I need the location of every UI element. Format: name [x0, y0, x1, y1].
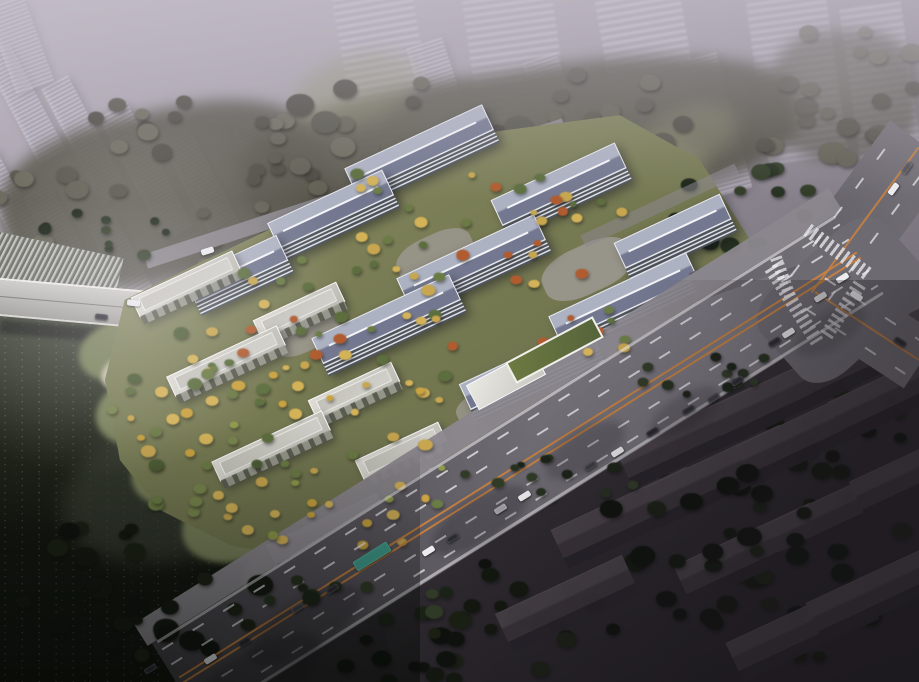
tree — [72, 209, 83, 218]
tree — [189, 496, 202, 507]
tree — [256, 383, 270, 394]
tree — [820, 107, 835, 119]
tree — [828, 543, 849, 560]
tree — [771, 187, 785, 198]
tree — [891, 522, 912, 539]
tree — [360, 635, 373, 645]
tree — [831, 564, 855, 583]
tree — [123, 543, 146, 561]
tree — [825, 450, 840, 462]
tree — [371, 650, 392, 667]
tree — [540, 455, 550, 463]
tree — [638, 378, 649, 387]
tree — [125, 388, 135, 396]
tree — [333, 79, 357, 98]
tree — [435, 397, 443, 403]
tree — [449, 611, 472, 629]
tree — [237, 348, 249, 357]
tree — [47, 539, 69, 556]
tree — [268, 152, 282, 163]
tree — [185, 449, 195, 457]
tree — [270, 163, 286, 175]
tree — [124, 524, 137, 535]
tree — [432, 315, 441, 322]
tree — [104, 240, 113, 247]
tree — [536, 488, 546, 496]
tree — [894, 432, 907, 442]
tree — [870, 50, 887, 64]
tree — [110, 184, 127, 198]
tree — [600, 500, 623, 518]
aerial-rendering-scene — [0, 0, 919, 682]
tree — [17, 596, 32, 608]
tree — [259, 300, 270, 309]
tree — [109, 98, 127, 112]
tree — [128, 373, 141, 384]
tree — [802, 82, 820, 96]
tree — [607, 318, 615, 324]
tree — [339, 350, 351, 360]
tree — [246, 326, 257, 335]
tree — [289, 408, 303, 419]
tree — [270, 132, 286, 145]
tree — [837, 151, 857, 167]
tree — [131, 615, 143, 625]
tree — [426, 589, 439, 599]
tree — [369, 260, 378, 267]
tree — [292, 381, 304, 391]
tree — [104, 636, 120, 649]
tree — [405, 380, 413, 386]
tree — [647, 501, 667, 517]
tree — [461, 470, 471, 478]
tree — [570, 201, 577, 207]
tree — [600, 489, 611, 498]
tree — [413, 77, 429, 90]
tree — [383, 236, 393, 244]
tree — [255, 398, 265, 406]
tree — [161, 600, 179, 615]
tree — [88, 111, 104, 124]
tree — [778, 76, 799, 93]
tree — [187, 355, 198, 364]
tree — [150, 428, 162, 438]
tree — [149, 459, 164, 471]
car-on-road — [126, 299, 140, 306]
tree — [167, 111, 181, 123]
tree — [127, 597, 145, 611]
tree — [350, 168, 364, 179]
tree — [360, 582, 373, 593]
tree — [872, 94, 891, 109]
tree — [302, 591, 319, 605]
tree — [683, 391, 692, 398]
tree — [113, 617, 133, 633]
tree — [300, 361, 309, 369]
car-on-road — [94, 313, 108, 320]
tree — [251, 459, 262, 468]
tree — [310, 468, 318, 474]
tree — [224, 359, 234, 367]
tree — [736, 464, 758, 482]
tree — [282, 365, 289, 371]
tree — [433, 272, 445, 281]
tree — [726, 362, 737, 371]
tree — [422, 285, 435, 296]
tree — [179, 630, 205, 651]
tree — [150, 217, 160, 225]
tree — [278, 401, 287, 408]
tree — [352, 266, 362, 274]
tree — [428, 628, 441, 638]
tree — [356, 232, 369, 242]
tree — [101, 226, 111, 234]
tree — [206, 395, 219, 405]
tree — [194, 483, 207, 493]
tree — [408, 661, 422, 672]
tree — [367, 244, 381, 255]
tree — [379, 613, 394, 625]
tree — [302, 282, 313, 291]
tree — [155, 387, 169, 398]
tree — [751, 485, 773, 503]
tree — [531, 662, 549, 677]
tree — [456, 249, 469, 260]
tree — [535, 173, 546, 182]
tree — [264, 596, 276, 605]
tree — [410, 272, 419, 279]
tree — [463, 599, 480, 613]
tree — [562, 470, 573, 478]
tree — [138, 124, 159, 141]
tree — [230, 422, 239, 429]
tree — [326, 395, 333, 401]
tree — [206, 327, 218, 337]
tree — [181, 408, 193, 418]
tree — [575, 269, 588, 280]
tree — [197, 208, 210, 218]
tree — [225, 503, 238, 513]
tree — [439, 587, 452, 598]
tree — [335, 311, 349, 322]
tree — [350, 409, 358, 416]
tree — [86, 579, 100, 590]
tree — [262, 433, 275, 443]
tree — [490, 183, 501, 192]
tree — [514, 184, 527, 194]
tree — [366, 176, 379, 186]
tree — [50, 618, 71, 635]
tree — [201, 369, 214, 380]
tree — [58, 523, 79, 540]
tree — [107, 406, 117, 414]
tree — [526, 473, 537, 482]
tree — [270, 510, 280, 518]
tree — [38, 224, 51, 235]
tree — [438, 370, 452, 381]
tree — [135, 109, 149, 120]
tree — [669, 554, 686, 567]
tree — [485, 624, 498, 635]
tree — [636, 98, 654, 112]
tree — [798, 113, 815, 127]
tree — [604, 306, 614, 314]
tree — [295, 327, 306, 336]
tree — [858, 27, 872, 38]
tree — [362, 382, 370, 388]
tree — [426, 605, 444, 619]
tree — [174, 327, 189, 339]
tree — [199, 433, 213, 444]
tree — [376, 355, 389, 365]
tree — [269, 372, 277, 379]
tree — [597, 199, 606, 206]
tree — [255, 116, 270, 128]
tree — [482, 568, 499, 582]
tree — [905, 82, 919, 95]
tree — [162, 229, 170, 236]
tree — [387, 510, 400, 520]
tree — [127, 415, 134, 421]
tree — [734, 186, 746, 195]
tree — [166, 414, 179, 425]
tree — [447, 342, 458, 351]
tree — [717, 596, 738, 613]
tree — [759, 353, 770, 362]
tree — [796, 507, 811, 519]
tree — [756, 138, 774, 152]
tree — [799, 25, 819, 41]
tree — [405, 205, 413, 212]
tree — [331, 137, 356, 157]
tree — [510, 275, 522, 284]
tree — [534, 240, 541, 246]
tree — [356, 184, 366, 192]
tree — [308, 180, 327, 195]
tree — [800, 184, 816, 197]
tree — [716, 477, 739, 495]
tree — [680, 493, 702, 511]
tree — [608, 462, 622, 473]
tree — [504, 251, 513, 258]
tree — [289, 316, 297, 323]
tree — [446, 632, 465, 647]
tree — [202, 462, 212, 470]
tree — [572, 213, 583, 222]
tree — [786, 547, 809, 565]
tree — [425, 667, 444, 682]
tree — [639, 74, 660, 91]
tree — [707, 616, 724, 630]
tree — [836, 118, 859, 136]
tree — [137, 249, 151, 260]
tree — [832, 465, 851, 480]
tree — [446, 672, 462, 682]
tree — [312, 111, 339, 133]
tree — [196, 573, 212, 586]
tree — [151, 144, 172, 160]
tree — [152, 496, 162, 504]
tree — [380, 674, 397, 682]
tree — [176, 95, 192, 108]
tree — [290, 158, 311, 175]
tree — [787, 534, 804, 548]
tree — [337, 659, 355, 673]
tree — [530, 210, 537, 216]
tree — [187, 507, 200, 517]
tree — [307, 499, 317, 507]
tree — [436, 651, 456, 667]
tree — [751, 164, 771, 180]
tree — [373, 187, 383, 195]
tree — [276, 535, 288, 544]
tree — [901, 44, 919, 63]
